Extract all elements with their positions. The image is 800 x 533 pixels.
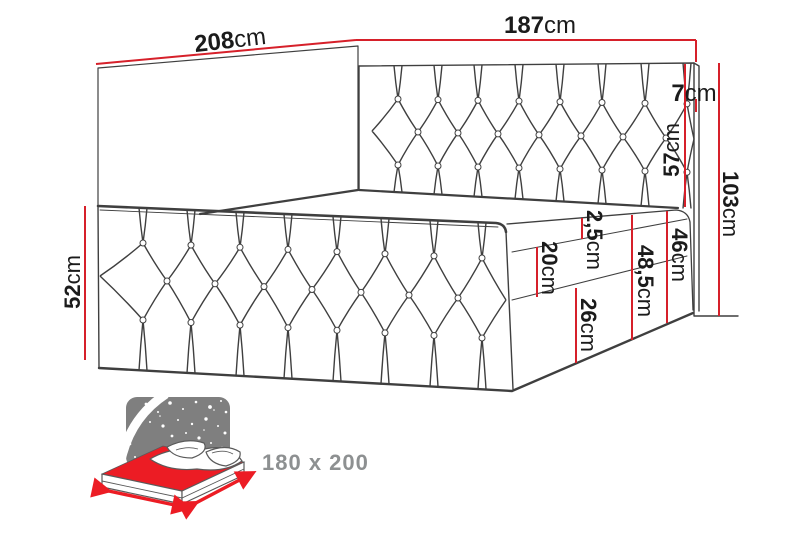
headboard-tufting [372, 63, 694, 208]
sleep-surface-height-label: 48,5cm [633, 245, 658, 317]
topper-height-label: 2,5cm [582, 210, 607, 270]
headboard-height-label: 57cm [659, 123, 684, 177]
bed-dimension-diagram: 208cm 187cm 7cm 57cm 103cm 52cm 2,5cm 20… [0, 0, 800, 533]
diagram-canvas: 208cm 187cm 7cm 57cm 103cm 52cm 2,5cm 20… [0, 0, 800, 533]
base-height-label: 26cm [576, 298, 601, 352]
bounding-box-lines [98, 46, 358, 206]
dimension-lines [85, 40, 719, 363]
bed-size-icon [102, 394, 249, 507]
width-label: 187cm [504, 12, 576, 39]
mattress-height-label: 20cm [537, 241, 562, 295]
side-height-label: 52cm [60, 255, 85, 309]
size-badge-label: 180 x 200 [262, 450, 369, 475]
total-height-label: 103cm [718, 171, 743, 237]
headboard-edge-label: 7cm [671, 80, 716, 107]
side-panel-tufting [100, 208, 506, 389]
base-mattress-height-label: 46cm [667, 228, 692, 282]
length-label: 208cm [193, 23, 268, 58]
mattress-edges [200, 190, 693, 310]
width-dimension-line [356, 40, 696, 62]
